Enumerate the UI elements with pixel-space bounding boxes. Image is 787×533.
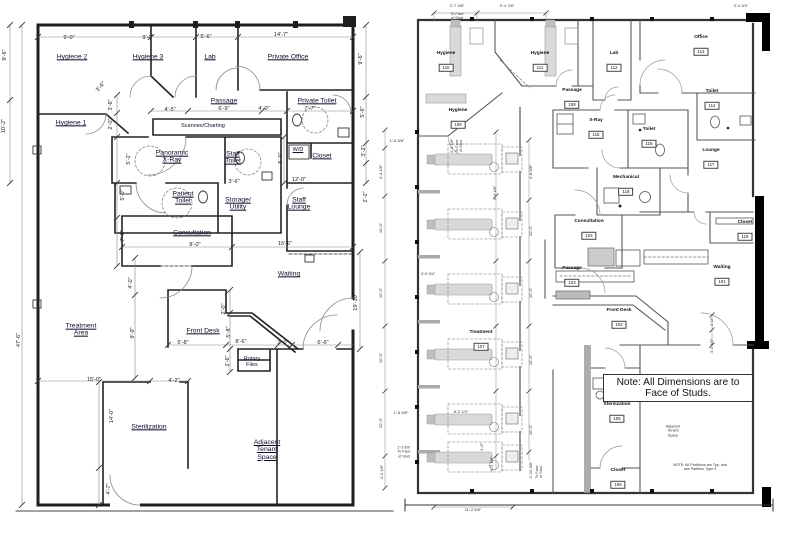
room-name: Office — [694, 35, 709, 40]
room-label-panoramic-x-ray: PanoramicX-Ray — [156, 150, 189, 165]
room-tag-hygiene-110: Hygiene110 — [437, 51, 456, 73]
room-number-box: 110 — [438, 64, 453, 72]
dimension-label: 19'-10" — [353, 293, 359, 310]
dimension-label: 2'-10 3/8" — [529, 462, 533, 479]
label-line: Lab — [204, 53, 215, 60]
dimension-label: 9'-3 1/8" — [490, 457, 494, 472]
label-line: Hygiene 1 — [56, 119, 87, 126]
annotation-line: Tenant — [666, 429, 680, 433]
label-line: Panoramic — [156, 150, 189, 157]
dimension-label: 11'-2 5/8" — [465, 508, 482, 512]
dimension-label: 47'-6" — [16, 333, 22, 347]
dimension-label: 10'-0" — [529, 288, 533, 298]
annotation-text: 1'-3 5/8"To Faceof Stud — [397, 446, 411, 459]
annotation-line: of Stud — [539, 465, 543, 478]
dimension-label: 6'-9" — [218, 106, 229, 112]
dimension-label: 2'-0" — [221, 303, 227, 314]
label-line: Hygiene 3 — [133, 53, 164, 60]
room-tag-passage-103: Passage103 — [562, 266, 581, 288]
dimension-label: 2'-2" — [363, 191, 369, 202]
label-line: Front Desk — [186, 327, 219, 334]
room-tag-toilet-116: Toilet116 — [642, 127, 657, 149]
dimension-label: 3'-6" — [95, 81, 107, 93]
label-line: Storage/ — [225, 197, 251, 204]
room-label-storage-utility: Storage/Utility — [225, 197, 251, 212]
dimension-label: 2'-0" — [710, 318, 714, 326]
dimension-label: 3'-2" — [361, 145, 367, 156]
dimension-label: 15'-6" — [278, 241, 292, 247]
label-line: Private Office — [268, 53, 309, 60]
annotation-line: use Partition Type 4 — [673, 467, 727, 471]
room-tag-office-113: Office113 — [694, 35, 709, 57]
room-label-staff-lounge: StaffLounge — [288, 197, 311, 212]
dimension-label: 10'-0" — [379, 288, 383, 298]
dimension-label: 5'-8" — [226, 326, 232, 337]
room-name: Mechanical — [613, 175, 639, 180]
room-number-box: 109 — [450, 121, 465, 129]
room-number-box: 105 — [609, 415, 624, 423]
room-label-hygiene-1: Hygiene 1 — [56, 119, 87, 126]
dimension-label: 9'-0" — [142, 35, 153, 41]
room-label-treatment-area: TreatmentArea — [66, 323, 97, 338]
room-label-closet: Closet — [312, 152, 331, 159]
label-line: Area — [66, 330, 97, 337]
dimension-label: 4'-2" — [168, 378, 179, 384]
annotation-line: of Stud — [459, 139, 463, 152]
room-number-box: 119 — [738, 233, 753, 241]
dimension-label: 10'-2" — [1, 119, 7, 133]
annotation-text: To Faceof Stud — [535, 465, 544, 478]
dimension-label: 3'-6" — [108, 99, 114, 110]
room-tag-consultation-104: Consultation104 — [574, 219, 603, 241]
dimension-label: 4'-5" — [164, 107, 175, 113]
dimension-label: 10'-0" — [529, 226, 533, 236]
dimension-label: 2'-6" — [225, 355, 231, 366]
dimension-label: 1'-6 5/8" — [394, 411, 409, 415]
room-label-adjacent-tenant-space: AdjacentTenantSpace — [254, 439, 280, 461]
room-number-box: 118 — [619, 188, 634, 196]
room-tag-passage-108: Passage108 — [562, 88, 581, 110]
room-name: Lab — [607, 51, 622, 56]
dimension-label: 4'-2 1/8" — [380, 465, 384, 480]
dimension-label: 10'-0" — [379, 223, 383, 233]
label-line: Treatment — [66, 323, 97, 330]
dimension-label: 15'-0" — [87, 377, 101, 383]
dimension-label: 8'-0" — [189, 242, 200, 248]
dimension-label: 4'-9 3/4" — [421, 272, 436, 276]
room-name: Closet — [738, 220, 753, 225]
room-name: Passage — [562, 266, 581, 271]
room-tag-mechanical-118: Mechanical118 — [613, 175, 639, 197]
label-line: Toilet — [225, 158, 241, 165]
room-name: Sterilization — [603, 402, 630, 407]
dimension-label: 9'-4 7/8" — [500, 4, 515, 8]
dimension-label: 8'-2 1/4" — [454, 410, 469, 414]
dimension-label: 9'-9" — [130, 327, 136, 338]
room-tag-lab-112: Lab112 — [607, 51, 622, 73]
label-line: Waiting — [278, 270, 300, 277]
room-number-box: 113 — [694, 48, 709, 56]
room-label-private-toilet: Private Toilet — [298, 97, 337, 104]
annotation-line: Space — [666, 433, 680, 437]
dimension-label: 9'-6" — [358, 53, 364, 64]
room-label-scannex-charting: Scannex/Charting — [181, 124, 225, 130]
room-tag-lounge-117: Lounge117 — [702, 148, 719, 170]
label-line: Hygiene 2 — [57, 53, 88, 60]
label-line: Sterilization — [131, 423, 166, 430]
room-name: Consultation — [574, 219, 603, 224]
room-label-waiting: Waiting — [278, 270, 300, 277]
room-label-rotary-files: RotaryFiles — [244, 357, 260, 369]
room-name: Hygiene — [449, 108, 468, 113]
room-number-box: 117 — [703, 161, 718, 169]
annotation-text: To Faceof Stud — [450, 12, 463, 21]
room-name: Toilet — [705, 89, 720, 94]
label-line: Closet — [312, 152, 331, 159]
annotation-line: of Stud — [397, 454, 411, 458]
room-name: Waiting — [713, 265, 730, 270]
room-tag-closet-119: Closet119 — [738, 220, 753, 242]
room-label-sterilization: Sterilization — [131, 423, 166, 430]
dimension-label: 14'-7" — [274, 32, 288, 38]
room-tag-closet-106: Closet106 — [610, 468, 625, 490]
dimension-label: 8'-6" — [235, 339, 246, 345]
label-line: Files — [244, 363, 260, 369]
dimension-label: 12'-0" — [292, 177, 306, 183]
room-label-staff-toilet: StaffToilet — [225, 151, 241, 166]
room-number-box: 114 — [705, 102, 720, 110]
label-line: X-Ray — [156, 157, 189, 164]
dimension-label: 9'-0" — [63, 35, 74, 41]
dimension-label: 4'-8 5/8" — [529, 165, 533, 180]
room-label-front-desk: Front Desk — [186, 327, 219, 334]
dimension-label: 9'-6" — [2, 49, 8, 60]
annotation-layer: Hygiene 2Hygiene 3LabPrivate OfficeHygie… — [0, 0, 787, 533]
room-name: Hygiene — [531, 51, 550, 56]
dimension-label: 5'-6" — [200, 34, 211, 40]
label-line: Staff — [288, 197, 311, 204]
room-tag-hygiene-109: Hygiene109 — [449, 108, 468, 130]
dimension-label: 6'-6" — [317, 340, 328, 346]
dimension-label: 5'-8" — [177, 340, 188, 346]
dimension-label: 10'-0" — [379, 353, 383, 363]
dimension-label: 3'-4 1/8" — [450, 139, 454, 154]
room-tag-waiting-101: Waiting101 — [713, 265, 730, 287]
dimension-label: 5'-0" — [120, 189, 126, 200]
room-tag-treatment-107: Treatment107 — [470, 330, 493, 352]
dimension-label: 4'-0 1/2" — [710, 339, 714, 354]
annotation-text: NOTE: All Partitions are Typ. anduse Par… — [673, 463, 727, 472]
room-tag-front-desk-102: Front Desk102 — [606, 308, 631, 330]
label-line: Staff — [225, 151, 241, 158]
dimension-label: 2'-0" — [108, 118, 114, 129]
dimension-label: 10'-0" — [529, 425, 533, 435]
dimension-label: 4'-7" — [106, 483, 112, 494]
dimension-label: 14'-0" — [109, 409, 115, 423]
room-label-passage: Passage — [211, 97, 237, 104]
room-tag-hygiene-111: Hygiene111 — [531, 51, 550, 73]
room-number-box: 107 — [473, 343, 488, 351]
label-line: Utility — [225, 204, 251, 211]
room-label-consultation: Consultation — [173, 229, 211, 236]
room-number-box: 101 — [714, 278, 729, 286]
room-number-box: 112 — [607, 64, 622, 72]
room-name: Treatment — [470, 330, 493, 335]
label-line: Private Toilet — [298, 97, 337, 104]
room-name: Closet — [610, 468, 625, 473]
dimension-label: 4'-4 1/8" — [379, 165, 383, 180]
room-number-box: 111 — [533, 64, 548, 72]
room-name: Hygiene — [437, 51, 456, 56]
label-line: Adjacent — [254, 439, 280, 446]
room-name: Passage — [562, 88, 581, 93]
room-label-hygiene-3: Hygiene 3 — [133, 53, 164, 60]
room-number-box: 103 — [564, 279, 579, 287]
dimension-label: 4'-0" — [128, 277, 134, 288]
dimension-label: 10'-0" — [379, 418, 383, 428]
dimension-label: 1'-6 5/8" — [390, 139, 405, 143]
label-line: Consultation — [173, 229, 211, 236]
label-line: Space — [254, 454, 280, 461]
dimension-label: 2'-0" — [277, 340, 288, 346]
label-line: Patient — [172, 191, 193, 198]
room-name: X-Ray — [589, 118, 604, 123]
room-number-box: 102 — [611, 321, 626, 329]
room-tag-sterilization-105: Sterilization105 — [603, 402, 630, 424]
dimension-label: 10'-0" — [529, 355, 533, 365]
room-number-box: 116 — [642, 140, 657, 148]
label-line: Passage — [211, 97, 237, 104]
dimension-label: 7'-3" — [120, 230, 126, 241]
room-number-box: 104 — [581, 232, 596, 240]
label-line: W/D — [293, 148, 304, 154]
dimension-label: 3'-4 3/4" — [734, 4, 749, 8]
room-label-lab: Lab — [204, 53, 215, 60]
label-line: Tenant — [254, 446, 280, 453]
room-label-private-office: Private Office — [268, 53, 309, 60]
dimension-label: 9'-3 1/8" — [493, 186, 497, 201]
room-number-box: 108 — [564, 101, 579, 109]
dimension-label: 5'-2" — [126, 153, 132, 164]
annotation-text: To Faceof Stud — [455, 139, 464, 152]
room-label-w-d: W/D — [293, 148, 304, 154]
room-name: Front Desk — [606, 308, 631, 313]
room-number-box: 115 — [589, 131, 604, 139]
annotation-line: of Stud — [450, 16, 463, 20]
room-name: Lounge — [702, 148, 719, 153]
dimension-label: 4'-0" — [258, 106, 269, 112]
dimension-label: 1'-0" — [480, 443, 484, 451]
dimension-label: 7'-7" — [304, 106, 315, 112]
label-line: Lounge — [288, 204, 311, 211]
dimension-label: 3'-7 3/8" — [450, 4, 465, 8]
annotation-line: To Face — [397, 450, 411, 454]
room-label-patient-toilet: PatientToilet — [172, 191, 193, 206]
dimensions-note: Note: All Dimensions are to Face of Stud… — [603, 374, 753, 402]
annotation-text: AdjacentTenantSpace — [666, 425, 680, 438]
room-number-box: 106 — [610, 481, 625, 489]
dimension-label: 5'-0" — [278, 152, 284, 163]
room-tag-toilet-114: Toilet114 — [705, 89, 720, 111]
room-tag-x-ray-115: X-Ray115 — [589, 118, 604, 140]
label-line: Scannex/Charting — [181, 124, 225, 130]
dimension-label: 3'-6" — [228, 179, 239, 185]
room-label-hygiene-2: Hygiene 2 — [57, 53, 88, 60]
room-name: Toilet — [642, 127, 657, 132]
label-line: Toilet — [172, 198, 193, 205]
dimension-label: 5'-6" — [360, 106, 366, 117]
